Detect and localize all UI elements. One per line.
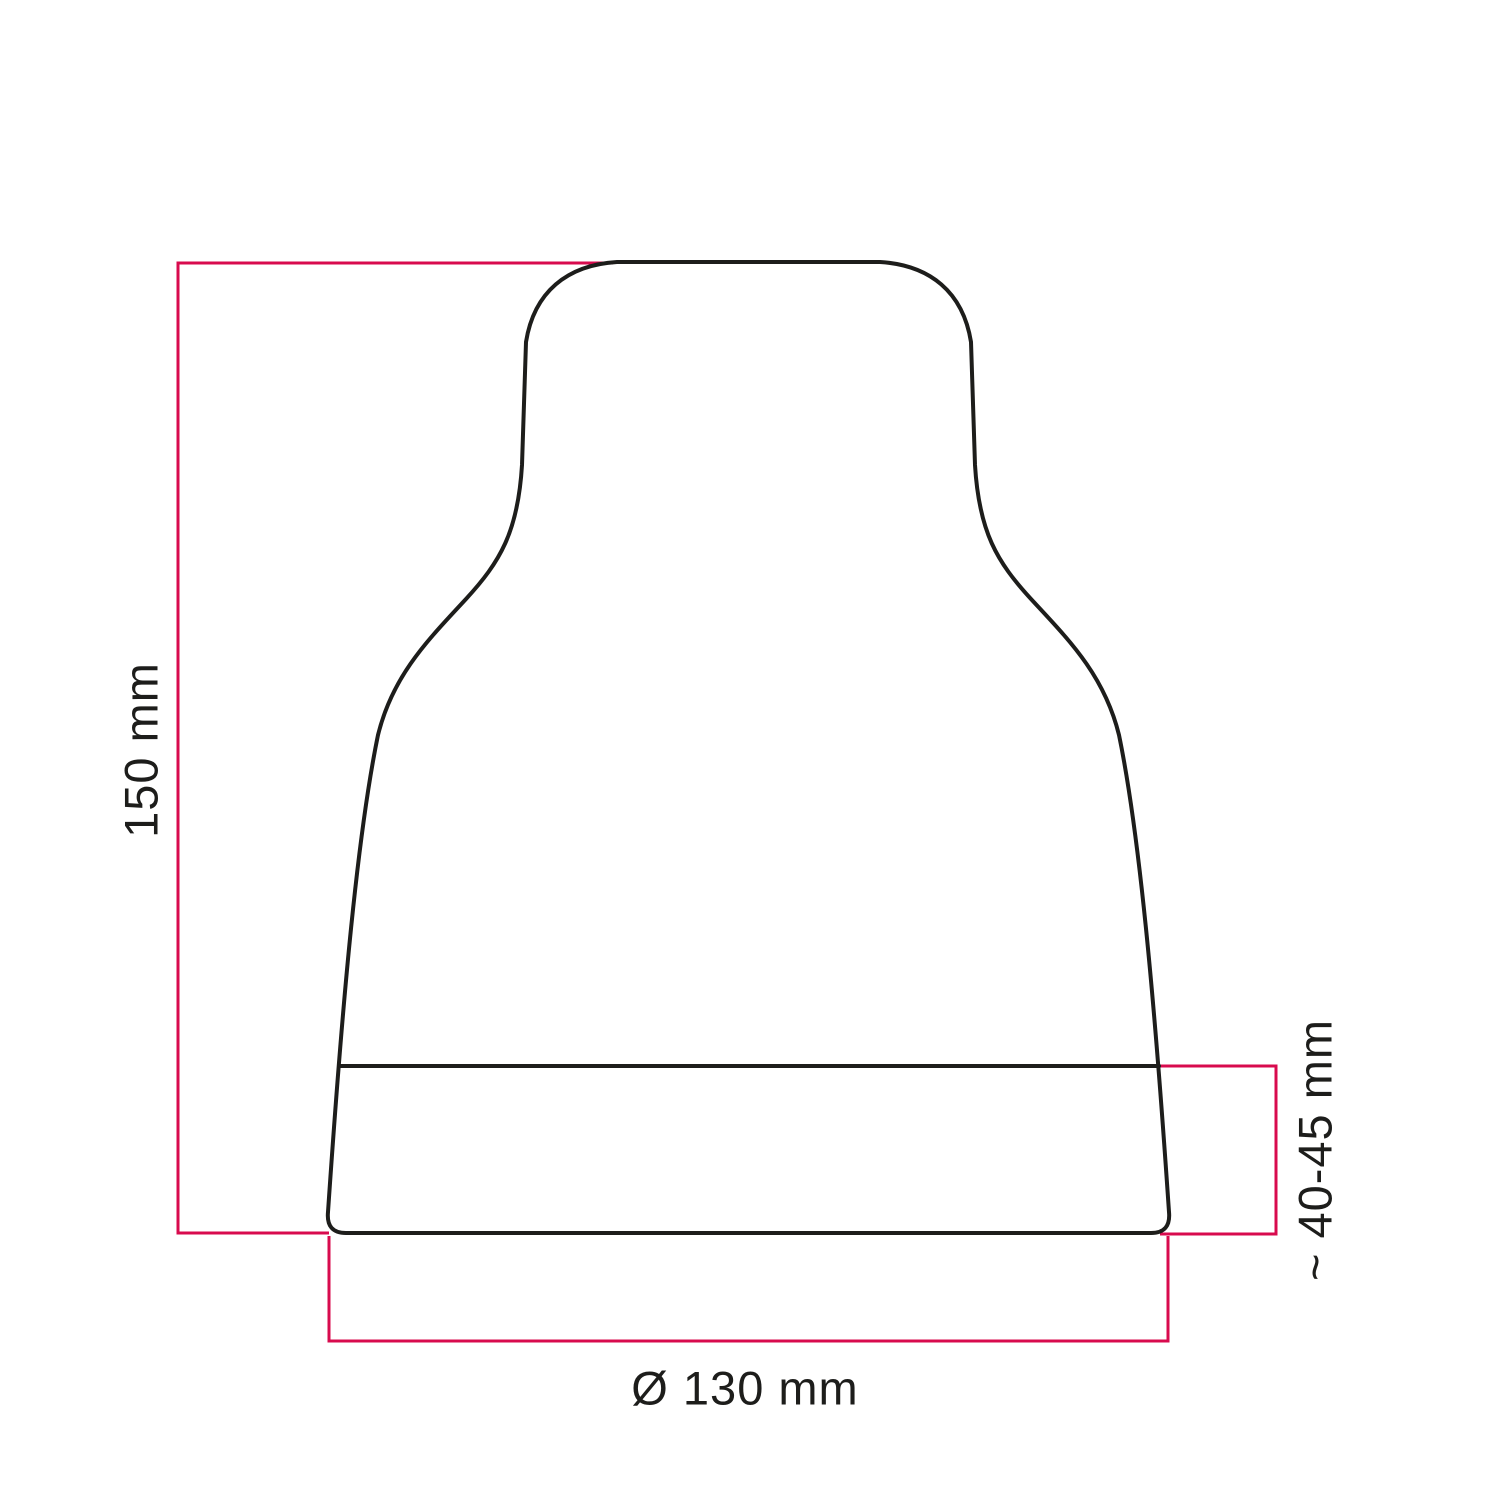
dimension-diagram: 150 mm ~ 40-45 mm Ø 130 mm — [0, 0, 1500, 1500]
lampshade-outline — [328, 262, 1169, 1233]
diameter-dimension-label: Ø 130 mm — [631, 1362, 858, 1415]
dimension-diagram-canvas: 150 mm ~ 40-45 mm Ø 130 mm — [0, 0, 1500, 1500]
base-height-dimension-line — [1156, 1066, 1276, 1234]
height-dimension-line — [178, 263, 613, 1233]
diameter-dimension-line — [329, 1236, 1168, 1341]
base-height-dimension-label: ~ 40-45 mm — [1289, 1019, 1342, 1281]
height-dimension-label: 150 mm — [115, 662, 168, 838]
